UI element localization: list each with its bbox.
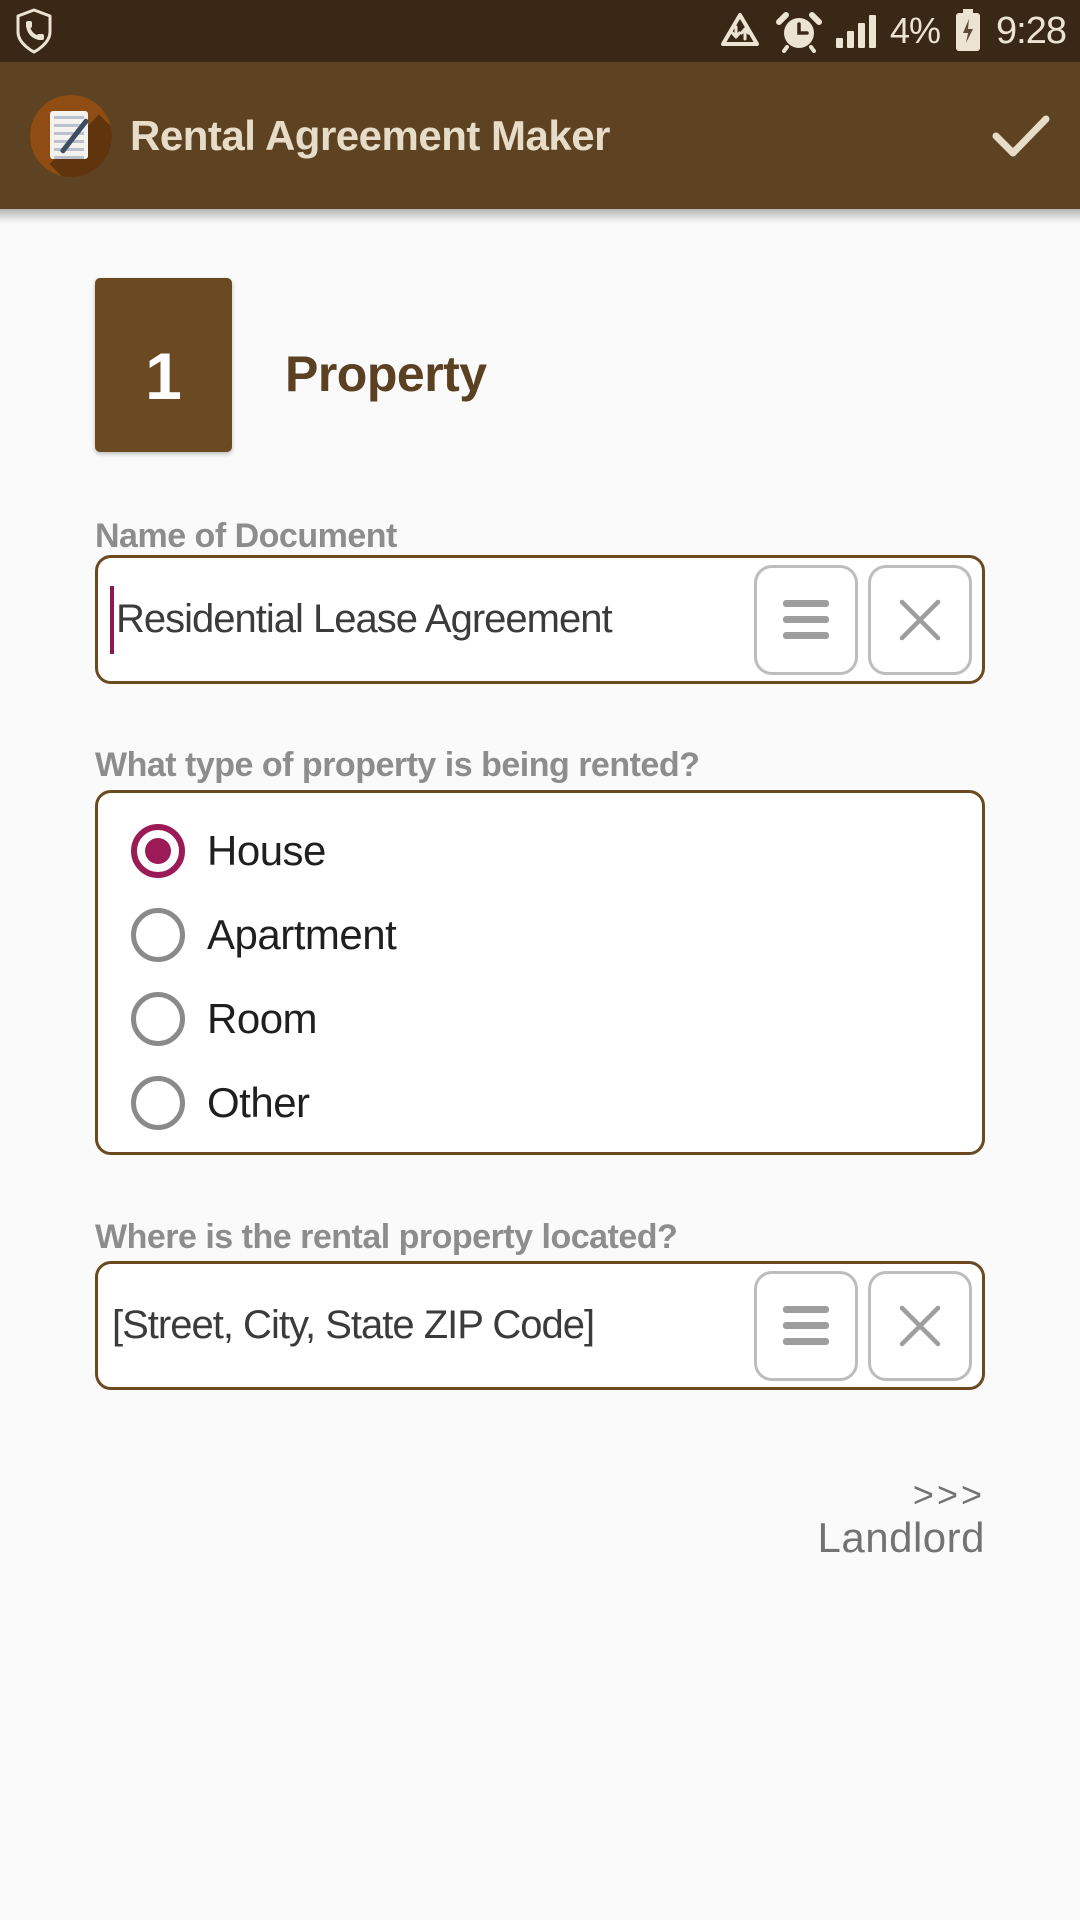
- battery-charging-icon: [954, 9, 982, 53]
- radio-option-label: Room: [207, 995, 317, 1043]
- hamburger-icon: [783, 1306, 829, 1345]
- radio-icon: [131, 992, 185, 1046]
- document-name-menu-button[interactable]: [754, 565, 858, 675]
- next-section-nav[interactable]: >>> Landlord: [818, 1476, 985, 1562]
- radio-option-house[interactable]: House: [131, 809, 982, 893]
- location-clear-button[interactable]: [868, 1271, 972, 1381]
- radio-option-label: House: [207, 827, 326, 875]
- clear-x-icon: [894, 1300, 946, 1352]
- radio-option-label: Apartment: [207, 911, 396, 959]
- confirm-check-icon[interactable]: [992, 114, 1050, 158]
- radio-option-label: Other: [207, 1079, 310, 1127]
- battery-percent: 4%: [890, 10, 940, 52]
- status-bar: 4% 9:28: [0, 0, 1080, 62]
- app-title: Rental Agreement Maker: [130, 112, 992, 160]
- app-bar-shadow: [0, 209, 1080, 223]
- hamburger-icon: [783, 600, 829, 639]
- screen: 4% 9:28 Rental Agreement Maker: [0, 0, 1080, 1920]
- data-saver-icon: [718, 11, 762, 51]
- property-type-label: What type of property is being rented?: [95, 746, 985, 785]
- shield-phone-icon: [14, 7, 54, 55]
- location-label: Where is the rental property located?: [95, 1218, 985, 1257]
- radio-option-apartment[interactable]: Apartment: [131, 893, 982, 977]
- app-bar: Rental Agreement Maker: [0, 62, 1080, 209]
- document-name-field: [95, 555, 985, 684]
- clear-x-icon: [894, 594, 946, 646]
- step-number: 1: [145, 338, 182, 414]
- location-menu-button[interactable]: [754, 1271, 858, 1381]
- alarm-clock-icon: [776, 9, 822, 53]
- property-type-group: House Apartment Room Other: [95, 790, 985, 1155]
- radio-icon: [131, 1076, 185, 1130]
- radio-icon: [131, 824, 185, 878]
- clock-time: 9:28: [996, 10, 1066, 53]
- step-number-badge: 1: [95, 278, 232, 452]
- document-name-label: Name of Document: [95, 517, 985, 556]
- next-arrows: >>>: [818, 1476, 985, 1514]
- page-title: Property: [285, 345, 487, 403]
- document-name-input[interactable]: [114, 558, 744, 681]
- next-section-label: Landlord: [818, 1514, 985, 1562]
- location-input[interactable]: [108, 1264, 744, 1387]
- location-field: [95, 1261, 985, 1390]
- signal-bars-icon: [836, 14, 876, 48]
- app-logo-icon: [30, 95, 112, 177]
- radio-icon: [131, 908, 185, 962]
- document-name-clear-button[interactable]: [868, 565, 972, 675]
- radio-option-room[interactable]: Room: [131, 977, 982, 1061]
- radio-option-other[interactable]: Other: [131, 1061, 982, 1145]
